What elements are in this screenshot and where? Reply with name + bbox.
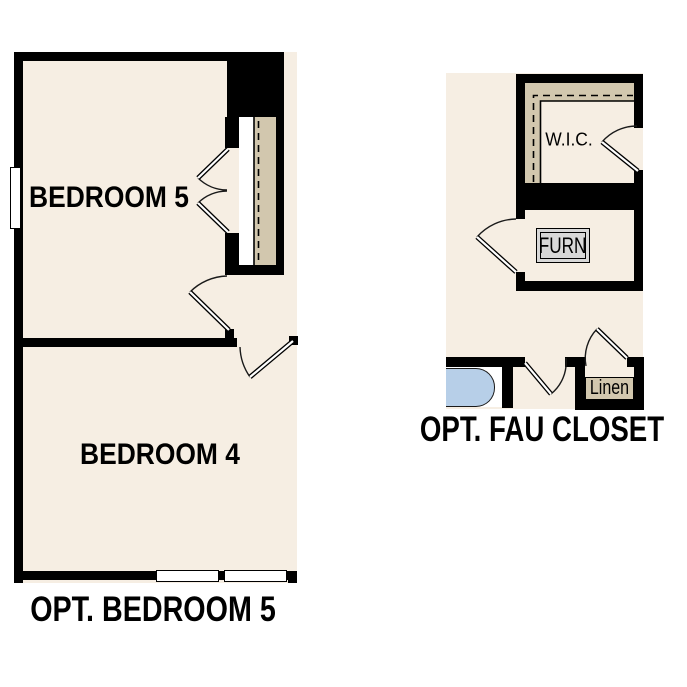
wall — [516, 74, 525, 183]
wall — [634, 210, 643, 291]
furn-label: FURN — [532, 233, 593, 259]
wall-mass — [516, 183, 643, 210]
bedroom5-label: BEDROOM 5 — [18, 181, 200, 215]
wall — [634, 74, 643, 128]
linen-label: Linen — [585, 377, 634, 400]
closet-jamb — [516, 210, 525, 219]
furnace-unit: FURN — [536, 228, 590, 263]
wall — [288, 571, 297, 583]
opt-fau-closet-caption: OPT. FAU CLOSET — [387, 410, 687, 450]
wall — [516, 74, 643, 83]
wall — [14, 52, 23, 583]
wic-shelf — [525, 83, 634, 101]
wall — [446, 357, 503, 367]
closet-jamb — [627, 357, 644, 367]
closet-jamb — [225, 117, 239, 148]
door-hinge-block — [289, 336, 298, 345]
wall — [276, 117, 284, 275]
wall — [634, 170, 643, 183]
linen-shelf: Linen — [585, 377, 634, 400]
wall — [14, 338, 237, 347]
wall — [225, 329, 234, 338]
wall-mass — [227, 61, 284, 117]
bathtub — [446, 368, 495, 407]
wall — [14, 52, 284, 61]
window — [224, 570, 287, 582]
bedroom4-label: BEDROOM 4 — [69, 438, 251, 472]
wall — [502, 357, 513, 408]
closet-shelf — [254, 117, 276, 265]
wall — [516, 281, 643, 291]
opt-bedroom5-caption: OPT. BEDROOM 5 — [3, 590, 302, 630]
closet-floor — [239, 117, 254, 265]
wall — [575, 400, 644, 410]
wic-shelf — [525, 83, 540, 183]
window — [156, 570, 219, 582]
door-jamb — [513, 357, 525, 367]
floorplan-canvas: FURN Linen — [0, 0, 687, 687]
wic-label: W.I.C. — [545, 130, 594, 151]
furnace-unit-inner: FURN — [540, 232, 586, 259]
